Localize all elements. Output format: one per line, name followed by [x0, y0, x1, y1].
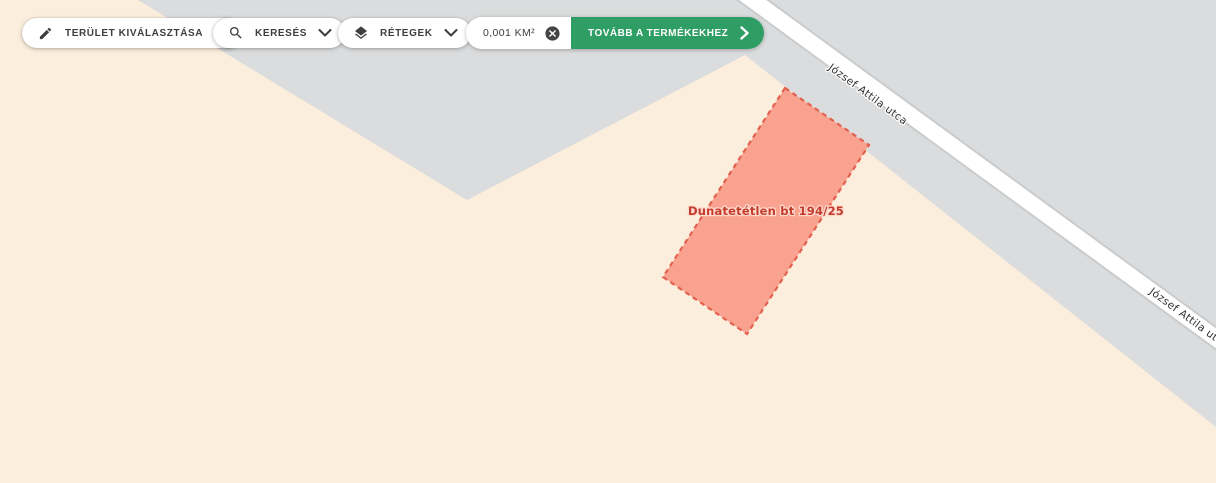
close-circle-icon [544, 25, 561, 42]
map-viewport[interactable]: Dunatetétlen bt 194/25 József Attila utc… [0, 0, 1216, 483]
chevron-right-icon [740, 26, 749, 40]
selected-area-chip: 0,001 KM² [466, 17, 571, 49]
area-proceed-control: 0,001 KM² TOVÁBB A TERMÉKEKHEZ [466, 17, 764, 49]
area-select-label: TERÜLET KIVÁLASZTÁSA [65, 28, 203, 39]
pencil-icon [38, 26, 53, 41]
search-label: KERESÉS [255, 28, 307, 39]
search-button[interactable]: KERESÉS [213, 18, 345, 48]
chevron-down-icon [444, 29, 458, 37]
proceed-to-products-button[interactable]: TOVÁBB A TERMÉKEKHEZ [571, 17, 764, 49]
parcel-label: Dunatetétlen bt 194/25 [688, 204, 844, 218]
search-icon [228, 25, 244, 41]
layers-label: RÉTEGEK [380, 28, 433, 39]
area-select-button[interactable]: TERÜLET KIVÁLASZTÁSA [22, 18, 242, 48]
layers-button[interactable]: RÉTEGEK [338, 18, 471, 48]
proceed-label: TOVÁBB A TERMÉKEKHEZ [588, 28, 728, 39]
selected-area-value: 0,001 KM² [483, 27, 535, 39]
chevron-down-icon [318, 29, 332, 37]
map-canvas[interactable]: Dunatetétlen bt 194/25 József Attila utc… [0, 0, 1216, 483]
layers-icon [353, 25, 369, 41]
clear-area-button[interactable] [544, 25, 561, 42]
